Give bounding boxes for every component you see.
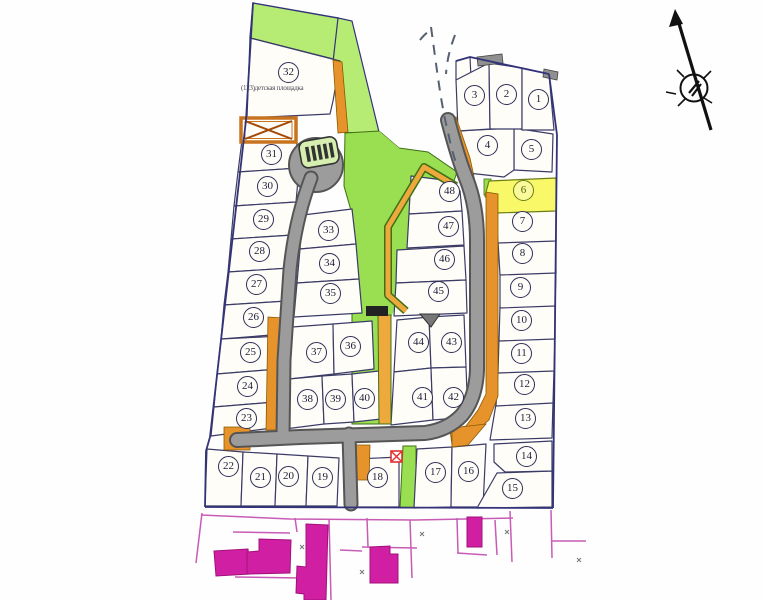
lot-36[interactable]: 36 [340, 336, 361, 357]
lot-35[interactable]: 35 [320, 283, 341, 304]
road-stub [349, 434, 351, 504]
lot-38[interactable]: 38 [297, 389, 318, 410]
building [214, 549, 250, 576]
lot-2[interactable]: 2 [496, 84, 517, 105]
lot-10[interactable]: 10 [511, 310, 532, 331]
lot-45[interactable]: 45 [428, 281, 449, 302]
building [467, 517, 482, 547]
lot-12[interactable]: 12 [514, 374, 535, 395]
building [296, 524, 328, 600]
parcel-46 [396, 246, 466, 283]
lot-48[interactable]: 48 [439, 181, 460, 202]
lot-15[interactable]: 15 [502, 478, 523, 499]
lot-33[interactable]: 33 [318, 220, 339, 241]
lot-46[interactable]: 46 [434, 249, 455, 270]
lot-20[interactable]: 20 [278, 466, 299, 487]
footpath-strip-south [378, 315, 391, 424]
lot-43[interactable]: 43 [441, 332, 462, 353]
lot-30[interactable]: 30 [257, 176, 278, 197]
red-crossed-box-icon [391, 451, 402, 462]
hatched-structure [298, 136, 340, 169]
north-arrow-icon [666, 9, 712, 130]
lot-22[interactable]: 22 [218, 456, 239, 477]
lot-25[interactable]: 25 [240, 342, 261, 363]
lot32-annotation: (123)детская площадка [241, 84, 341, 92]
lot-24[interactable]: 24 [237, 376, 258, 397]
lot-31[interactable]: 31 [261, 144, 282, 165]
lot-14[interactable]: 14 [516, 446, 537, 467]
black-structure [366, 306, 388, 316]
lot-21[interactable]: 21 [250, 467, 271, 488]
lot-37[interactable]: 37 [306, 342, 327, 363]
site-plan-canvas: 1 2 3 4 5 6 7 8 9 10 11 12 13 14 15 16 1… [0, 0, 765, 600]
lot-47[interactable]: 47 [438, 216, 459, 237]
lot-27[interactable]: 27 [246, 274, 267, 295]
lot-1[interactable]: 1 [528, 89, 549, 110]
orange-crossed-box-icon [241, 118, 296, 142]
existing-magenta-layer [196, 510, 586, 600]
lot-40[interactable]: 40 [354, 388, 375, 409]
lot-5[interactable]: 5 [521, 139, 542, 160]
lot-32[interactable]: 32 [278, 62, 299, 83]
lot-17[interactable]: 17 [425, 462, 446, 483]
lot-23[interactable]: 23 [236, 408, 257, 429]
building [370, 546, 398, 583]
plat-map [0, 0, 765, 600]
lot-34[interactable]: 34 [319, 253, 340, 274]
lot-6[interactable]: 6 [513, 180, 534, 201]
lot-41[interactable]: 41 [412, 387, 433, 408]
lot-44[interactable]: 44 [408, 332, 429, 353]
lot-28[interactable]: 28 [249, 241, 270, 262]
lot-4[interactable]: 4 [477, 135, 498, 156]
lot-39[interactable]: 39 [325, 389, 346, 410]
lot-16[interactable]: 16 [458, 461, 479, 482]
lot-29[interactable]: 29 [253, 209, 274, 230]
lot-8[interactable]: 8 [512, 243, 533, 264]
lot-9[interactable]: 9 [510, 277, 531, 298]
lot-42[interactable]: 42 [443, 387, 464, 408]
lot-7[interactable]: 7 [512, 211, 533, 232]
building [247, 539, 291, 574]
lot-3[interactable]: 3 [464, 85, 485, 106]
lot-19[interactable]: 19 [312, 467, 333, 488]
lot-18[interactable]: 18 [367, 467, 388, 488]
lot-11[interactable]: 11 [511, 343, 532, 364]
lot-26[interactable]: 26 [243, 307, 264, 328]
lot-13[interactable]: 13 [515, 408, 536, 429]
